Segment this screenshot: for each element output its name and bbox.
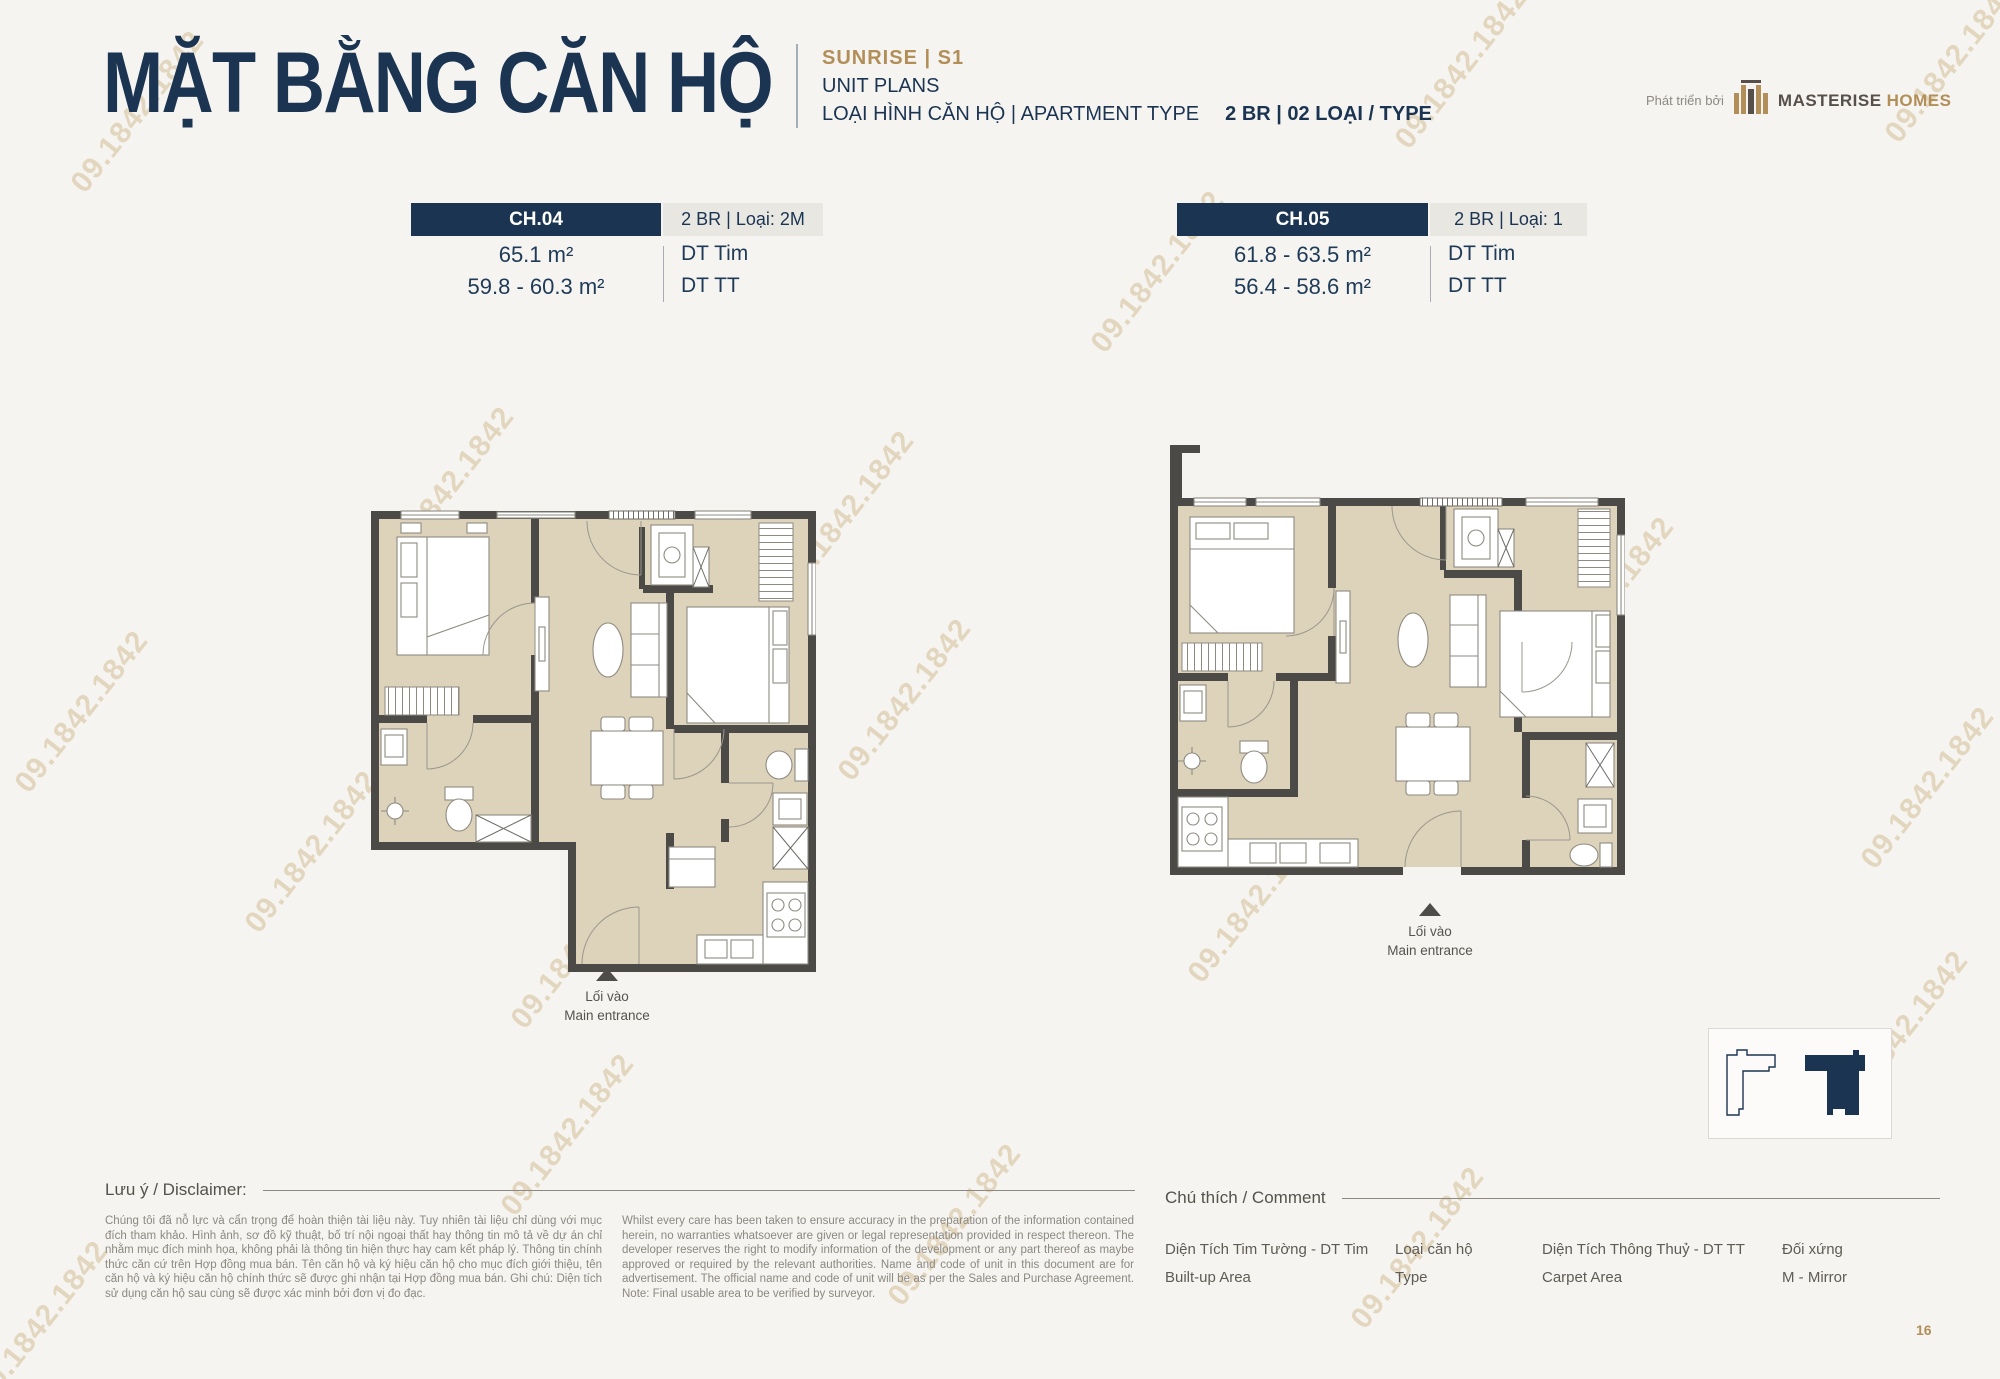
header-subtitle: UNIT PLANS (822, 72, 1432, 100)
floorplan-ch05 (1170, 445, 1625, 880)
apartment-type-label: LOẠI HÌNH CĂN HỘ | APARTMENT TYPE (822, 103, 1199, 125)
legend-en: Built-up Area (1165, 1264, 1368, 1292)
legend-vi: Diện Tích Thông Thuỷ - DT TT (1542, 1236, 1745, 1264)
entrance-vi: Lối vào (1330, 922, 1530, 941)
entrance-en: Main entrance (507, 1006, 707, 1025)
brand-name: MASTERISEHOMES (1778, 91, 1952, 111)
header-divider (796, 44, 798, 128)
disclaimer-text-vi: Chúng tôi đã nỗ lực và cẩn trọng để hoàn… (105, 1214, 602, 1302)
legend-en: M - Mirror (1782, 1264, 1847, 1292)
entrance-arrow-icon (596, 968, 618, 981)
disclaimer-text-en: Whilst every care has been taken to ensu… (622, 1214, 1134, 1302)
brand-masterise: MASTERISE (1778, 91, 1882, 110)
carpet-label-ch05: DT TT (1448, 274, 1507, 298)
brand-homes: HOMES (1887, 91, 1952, 110)
unit-type-ch04: 2 BR | Loại: 2M (663, 203, 823, 236)
developer-logo: Phát triển bởi MASTERISEHOMES (1646, 78, 1951, 123)
unit-divider-ch04 (663, 246, 664, 302)
entrance-en: Main entrance (1330, 941, 1530, 960)
watermark: 09.1842.1842 (1878, 0, 2000, 150)
legend-vi: Đối xứng (1782, 1236, 1847, 1264)
watermark: 09.1842.1842 (831, 612, 978, 787)
watermark: 09.1842.1842 (238, 764, 385, 939)
watermark: 09.1842.1842 (0, 1234, 116, 1379)
floorplan-ch04 (371, 497, 816, 977)
brochure-page: 09.1842.1842 09.1842.1842 09.1842.1842 0… (0, 0, 2000, 1379)
entrance-vi: Lối vào (507, 987, 707, 1006)
entrance-arrow-icon (1419, 903, 1441, 916)
page-title: MẶT BẰNG CĂN HỘ (103, 34, 772, 133)
project-name: SUNRISE | S1 (822, 44, 1432, 72)
unit-area-builtup-ch04: 65.1 m² (411, 242, 661, 268)
disclaimer-rule (263, 1190, 1135, 1191)
legend-item-builtup: Diện Tích Tim Tường - DT Tim Built-up Ar… (1165, 1236, 1368, 1292)
developer-prefix: Phát triển bởi (1646, 93, 1724, 108)
legend-item-type: Loại căn hộ Type (1395, 1236, 1473, 1292)
legend-rule (1342, 1198, 1940, 1199)
unit-code-ch04: CH.04 (411, 203, 661, 236)
builtup-label-ch05: DT Tim (1448, 242, 1515, 266)
header-info: SUNRISE | S1 UNIT PLANS LOẠI HÌNH CĂN HỘ… (822, 44, 1432, 128)
legend-item-mirror: Đối xứng M - Mirror (1782, 1236, 1847, 1292)
unit-area-carpet-ch05: 56.4 - 58.6 m² (1177, 274, 1428, 300)
legend-item-carpet: Diện Tích Thông Thuỷ - DT TT Carpet Area (1542, 1236, 1745, 1292)
unit-type-ch05: 2 BR | Loại: 1 (1430, 203, 1587, 236)
building-locator-map (1709, 1029, 1891, 1138)
unit-area-builtup-ch05: 61.8 - 63.5 m² (1177, 242, 1428, 268)
disclaimer-heading: Lưu ý / Disclaimer: (105, 1180, 247, 1200)
unit-area-carpet-ch04: 59.8 - 60.3 m² (411, 274, 661, 300)
entrance-label-ch05: Lối vào Main entrance (1330, 903, 1530, 960)
legend-heading: Chú thích / Comment (1165, 1188, 1326, 1208)
watermark: 09.1842.1842 (8, 624, 155, 799)
legend-vi: Loại căn hộ (1395, 1236, 1473, 1264)
unit-divider-ch05 (1430, 246, 1431, 302)
legend-header: Chú thích / Comment (1165, 1188, 1940, 1208)
entrance-label-ch04: Lối vào Main entrance (507, 968, 707, 1025)
unit-code-ch05: CH.05 (1177, 203, 1428, 236)
locator-building-label: S1 (1831, 1095, 1851, 1113)
disclaimer-header: Lưu ý / Disclaimer: (105, 1180, 1135, 1200)
masterise-logo-icon (1734, 78, 1768, 123)
builtup-label-ch04: DT Tim (681, 242, 748, 266)
apartment-type-value: 2 BR | 02 LOẠI / TYPE (1225, 103, 1432, 125)
legend-en: Carpet Area (1542, 1264, 1745, 1292)
page-number: 16 (1916, 1322, 1932, 1338)
building-locator: S1 (1708, 1028, 1892, 1139)
watermark: 09.1842.1842 (1854, 700, 2000, 875)
legend-en: Type (1395, 1264, 1473, 1292)
carpet-label-ch04: DT TT (681, 274, 740, 298)
legend-vi: Diện Tích Tim Tường - DT Tim (1165, 1236, 1368, 1264)
